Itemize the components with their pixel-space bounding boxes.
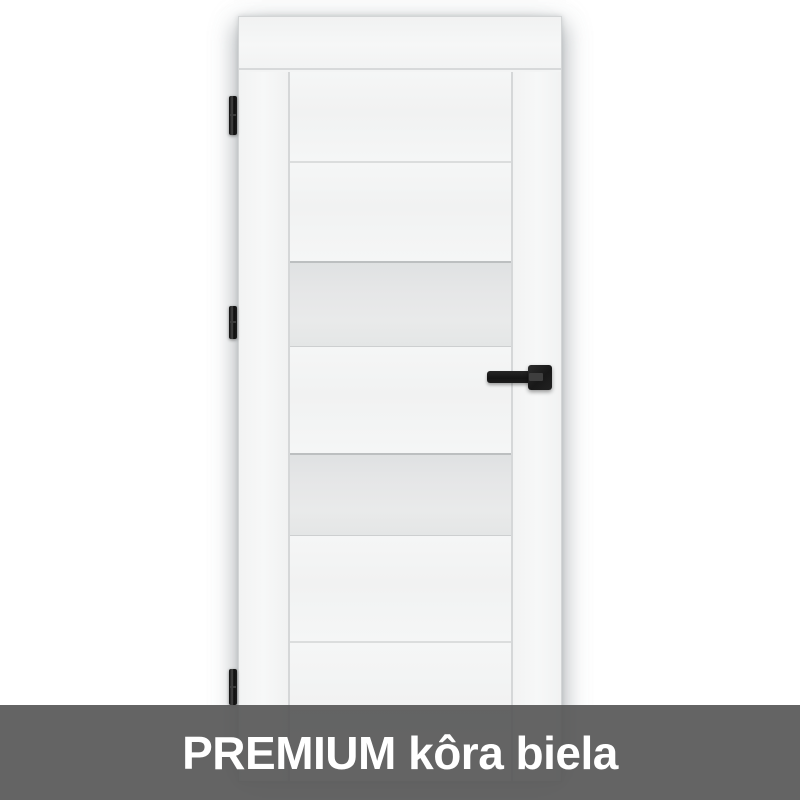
door-panel xyxy=(290,536,511,641)
door-hinge-top xyxy=(229,96,237,135)
door-hinge-bottom xyxy=(229,669,237,705)
door-right-stile xyxy=(513,72,561,781)
product-name-banner: PREMIUM kôra biela xyxy=(0,705,800,800)
door-hinge-middle xyxy=(229,306,237,339)
door-panel xyxy=(290,161,511,261)
door-panel-column xyxy=(288,72,513,781)
door-panel xyxy=(290,72,511,161)
door-leaf xyxy=(238,16,562,782)
door-handle-neck xyxy=(529,373,543,381)
door-left-stile xyxy=(239,72,288,781)
frosted-glass-panel xyxy=(290,261,511,347)
product-name-label: PREMIUM kôra biela xyxy=(182,726,618,780)
product-image: PREMIUM kôra biela xyxy=(0,0,800,800)
door-panel xyxy=(290,347,511,453)
frosted-glass-panel xyxy=(290,453,511,536)
door-top-rail xyxy=(239,17,561,70)
